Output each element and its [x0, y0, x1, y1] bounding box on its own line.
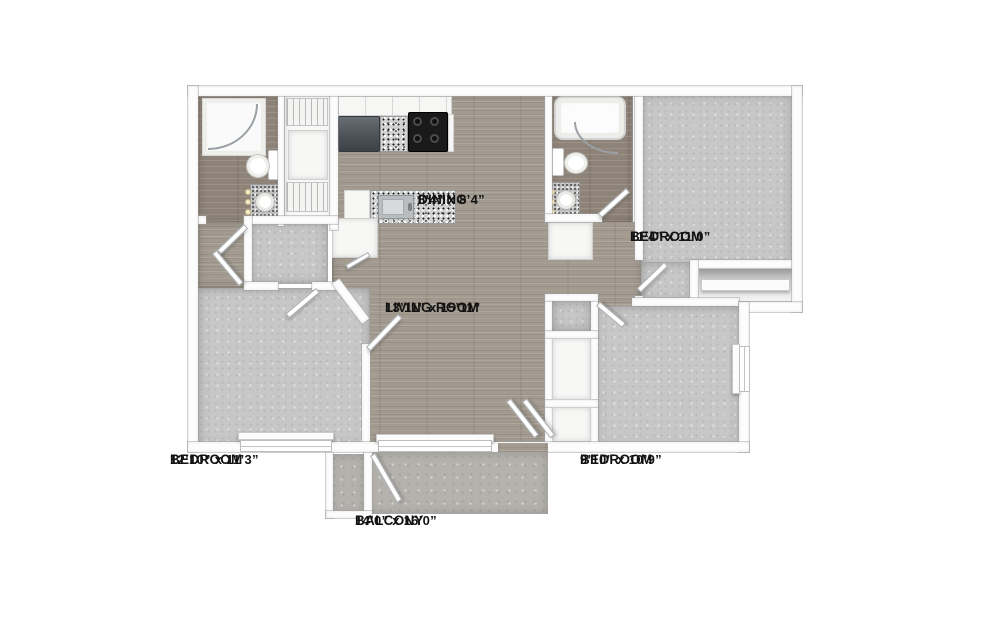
room-dims: 12’10” x 11’3”	[170, 452, 259, 467]
wall-under-bath1-a	[198, 216, 206, 224]
wall-outer-top	[188, 86, 802, 96]
vanity-sink-icon	[255, 192, 275, 212]
wall-closet-tr-front	[690, 260, 793, 268]
window-icon	[739, 346, 750, 392]
wall-under-bath1-b	[244, 216, 338, 224]
wall-linen-div2	[545, 400, 598, 407]
window-sill	[238, 432, 334, 440]
kitchen-counter-icon	[380, 116, 408, 152]
linen-closet-carpet	[552, 301, 591, 331]
wall-bedroom-tr-bottom	[632, 298, 739, 306]
wall-bedroom-bl-right	[362, 344, 370, 450]
wire-shelf-icon	[286, 182, 328, 212]
balcony-door-threshold	[498, 443, 548, 452]
hall-cabinet-icon	[548, 222, 593, 260]
wall-outer-left	[188, 86, 198, 452]
floor-balcony	[368, 452, 548, 514]
wall-linen-top	[545, 294, 598, 301]
window-icon	[378, 440, 492, 452]
wall-linen-div1	[545, 331, 598, 338]
floor-bedroom-bottom-left	[198, 288, 370, 448]
wall-outer-right-upper	[792, 86, 802, 312]
wall-balcony-closet-right	[364, 450, 372, 512]
toilet-icon	[564, 152, 588, 174]
floor-plan: DINING 8’4” x 8’4” BEDROOM 11’4” x 11’0”…	[0, 0, 998, 626]
wall-bath2-left	[545, 94, 552, 222]
toilet-tank-icon	[552, 148, 564, 176]
wire-shelf-icon	[286, 98, 328, 126]
toilet-icon	[246, 154, 270, 178]
wall-closet-kitchen	[330, 94, 338, 230]
vanity-light-icon	[245, 199, 251, 205]
closet-cabinet	[288, 130, 328, 180]
wall-bath1-closet-divider	[278, 94, 284, 226]
floor-balcony-storage	[330, 454, 366, 514]
stove-burner-icon	[430, 134, 439, 143]
kitchen-sink-basin	[382, 199, 404, 215]
kitchen-faucet-icon	[408, 203, 412, 211]
room-dims: 13’11” x 15’11”	[385, 300, 481, 315]
linen-closet-shelf-a	[552, 338, 591, 400]
vanity-light-icon	[245, 209, 251, 215]
vanity-sink-icon	[556, 190, 576, 210]
refrigerator-icon	[338, 116, 380, 152]
floor-walk-in-closet	[250, 222, 328, 284]
stove-burner-icon	[413, 117, 422, 126]
linen-closet-shelf-b	[552, 407, 591, 442]
wall-bath2-bottom	[545, 214, 602, 222]
room-dims: 14’0” x 16’0”	[355, 513, 437, 528]
closet-shelf-icon	[701, 279, 790, 291]
vanity-light-icon	[245, 189, 251, 195]
pantry-cabinet-icon	[332, 218, 378, 258]
window-icon	[240, 440, 332, 452]
room-dims: 11’4” x 11’0”	[630, 229, 711, 244]
floor-bedroom-bottom-right	[595, 306, 741, 448]
stove-burner-icon	[430, 117, 439, 126]
wall-walkin-bottom-a	[244, 282, 278, 290]
stove-burner-icon	[413, 134, 422, 143]
wall-balcony-closet-left	[326, 450, 333, 518]
kitchen-counter-end	[448, 114, 454, 152]
room-dims: 8’4” x 8’4”	[418, 192, 485, 207]
wall-linen-right	[591, 294, 598, 450]
room-dims: 9’10” x 10’9”	[580, 452, 662, 467]
